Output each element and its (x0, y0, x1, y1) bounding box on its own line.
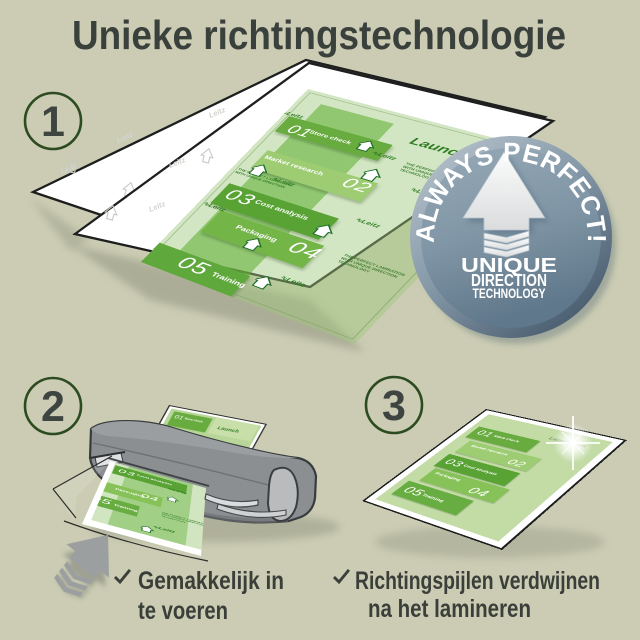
svg-text:Richtingspijlen verdwijnen: Richtingspijlen verdwijnen (355, 567, 600, 595)
svg-text:te voeren: te voeren (138, 597, 228, 625)
svg-text:na het lamineren: na het lamineren (368, 595, 531, 623)
svg-text:Gemakkelijk in: Gemakkelijk in (138, 567, 284, 595)
